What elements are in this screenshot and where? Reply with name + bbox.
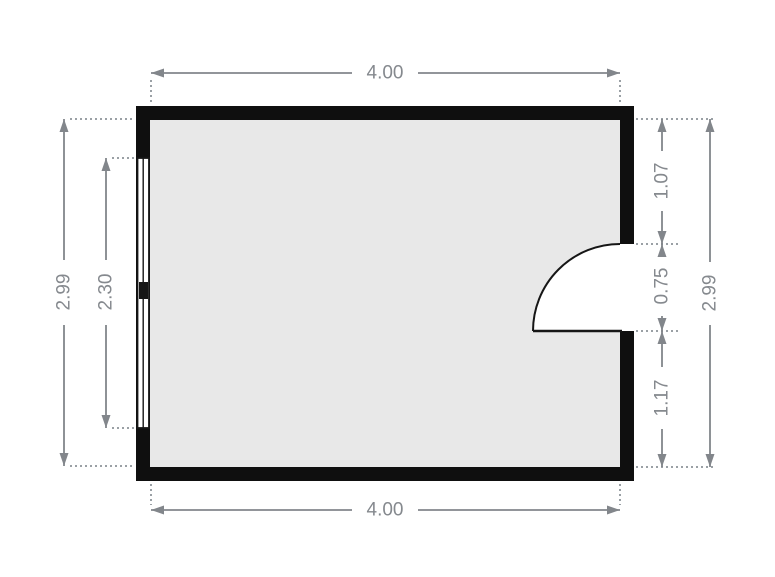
arrow-down-icon — [658, 231, 667, 244]
dim-label-door-opening: 0.75 — [652, 268, 673, 305]
dimension-door-opening: 0.75 — [652, 244, 673, 331]
arrow-down-icon — [60, 453, 69, 466]
dimension-left-height: 2.99 — [54, 119, 135, 466]
arrow-up-icon — [658, 119, 667, 132]
dimension-right-height: 2.99 — [700, 119, 721, 467]
arrow-left-icon — [151, 69, 164, 78]
dimension-bottom-width: 4.00 — [151, 484, 620, 521]
dim-label-door-bottom-offset: 1.17 — [652, 380, 673, 417]
dim-label-top-width: 4.00 — [367, 63, 404, 84]
door-opening — [619, 244, 635, 331]
window[interactable] — [138, 158, 150, 428]
arrow-up-icon — [102, 158, 111, 171]
dimension-top-width: 4.00 — [151, 63, 620, 104]
arrow-up-icon — [658, 244, 667, 257]
dim-label-window-length: 2.30 — [96, 274, 117, 311]
dim-label-left-height: 2.99 — [54, 274, 75, 311]
floorplan-drawing: 4.00 4.00 2.99 2.30 — [0, 0, 775, 577]
floorplan-canvas: 4.00 4.00 2.99 2.30 — [0, 0, 775, 577]
arrow-down-icon — [658, 454, 667, 467]
arrow-down-icon — [658, 318, 667, 331]
arrow-down-icon — [102, 415, 111, 428]
dim-label-right-height: 2.99 — [700, 275, 721, 312]
dim-label-bottom-width: 4.00 — [367, 500, 404, 521]
arrow-up-icon — [60, 119, 69, 132]
arrow-right-icon — [607, 69, 620, 78]
arrow-right-icon — [607, 506, 620, 515]
dimension-window-length: 2.30 — [96, 158, 135, 428]
arrow-down-icon — [706, 454, 715, 467]
arrow-left-icon — [151, 506, 164, 515]
dimension-door-top-offset: 1.07 — [652, 119, 673, 244]
arrow-up-icon — [658, 331, 667, 344]
dimension-door-bottom-offset: 1.17 — [652, 331, 673, 467]
dim-label-door-top-offset: 1.07 — [652, 163, 673, 200]
window-handle — [139, 282, 148, 299]
arrow-up-icon — [706, 119, 715, 132]
